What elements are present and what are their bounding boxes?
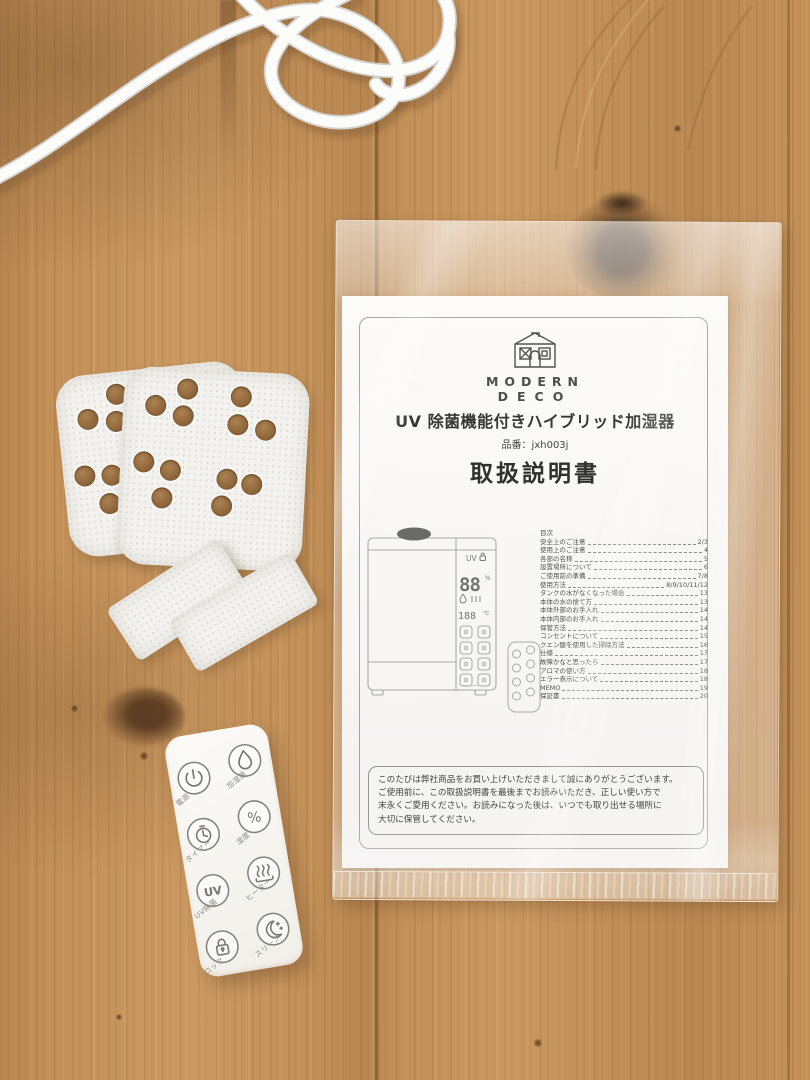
- remote-timer-button: タイマー: [183, 814, 223, 854]
- svg-text:%: %: [485, 575, 491, 582]
- remote-power-button: 電源: [174, 758, 214, 798]
- humidifier-illustration: UV 88 % 188 ℃: [362, 522, 544, 718]
- toc-row: コンセントについて15: [540, 632, 708, 641]
- toc-row: 仕様17: [540, 649, 708, 658]
- steam-icon: [472, 596, 480, 602]
- mist-nozzle: [397, 528, 431, 541]
- lock-icon: [480, 553, 486, 560]
- notice-line: ご使用前に、この取扱説明書を最後までお読みいただき、正しい使い方で: [378, 787, 694, 800]
- toc-row: 安全上のご注意2/3: [540, 538, 708, 547]
- wood-speck: [140, 752, 148, 760]
- svg-text:℃: ℃: [483, 610, 489, 617]
- notice-line: このたびは弊社商品をお買い上げいただきまして誠にありがとうございます。: [378, 774, 694, 787]
- toc-row: 保証書20: [540, 692, 708, 701]
- toc-row: エラー表示について18: [540, 675, 708, 684]
- toc-row: 設置場所について6: [540, 563, 708, 572]
- toc-row: 本体内部のお手入れ14: [540, 615, 708, 624]
- toc-row: クエン酸を使用した掃除方法16: [540, 641, 708, 650]
- toc-row: 保管方法14: [540, 624, 708, 633]
- notice-line: 末永くご愛用ください。お読みになった後は、いつでも取り出せる場所に: [378, 800, 694, 813]
- wood-speck: [674, 125, 681, 132]
- brand-name: MODERN DECO: [342, 374, 728, 404]
- notice-box: このたびは弊社商品をお買い上げいただきまして誠にありがとうございます。 ご使用前…: [368, 766, 704, 835]
- toc-row: ご使用前の準備7/8: [540, 572, 708, 581]
- manual-cover: MODERN DECO UV 除菌機能付きハイブリッド加湿器 品番：jxh003…: [342, 296, 728, 868]
- svg-text:188: 188: [458, 611, 476, 622]
- wood-speck: [534, 1039, 542, 1047]
- table-of-contents: 目次 安全上のご注意2/3 使用上のご注意4 各部の名称5 設置場所について6 …: [540, 529, 708, 701]
- remote-uv-button: UV UV除菌: [193, 870, 233, 910]
- toc-header: 目次: [540, 529, 708, 538]
- svg-text:88: 88: [459, 574, 480, 596]
- remote-heater-button: ヒーター: [243, 853, 283, 893]
- remote-lock-button: ロック: [202, 927, 242, 967]
- toc-row: 使用方法8/9/10/11/12: [540, 581, 708, 590]
- wood-knot: [104, 688, 184, 746]
- toc-row: 本体外部のお手入れ14: [540, 606, 708, 615]
- toc-row: タンクの水がなくなった場合13: [540, 589, 708, 598]
- modern-deco-logo-icon: [511, 330, 559, 370]
- photo-scene: MODERN DECO UV 除菌機能付きハイブリッド加湿器 品番：jxh003…: [0, 0, 810, 1080]
- remote-mist-button: 加湿量: [225, 740, 265, 780]
- display-panel: UV 88 % 188 ℃: [458, 553, 491, 686]
- grain-streak: [220, 0, 236, 160]
- product-title: UV 除菌機能付きハイブリッド加湿器: [342, 408, 728, 432]
- brand-line1: MODERN: [342, 374, 728, 389]
- wood-speck: [116, 1014, 122, 1020]
- toc-row: アロマの使い方18: [540, 667, 708, 676]
- mini-remote-illustration: [508, 642, 540, 712]
- remote-humidity-button: % 湿度: [234, 797, 274, 837]
- model-number: 品番：jxh003j: [342, 436, 728, 451]
- toc-row: 故障かなと思ったら17: [540, 658, 708, 667]
- brand-line2: DECO: [342, 389, 728, 404]
- svg-text:UV: UV: [466, 554, 477, 563]
- toc-row: 使用上のご注意4: [540, 546, 708, 555]
- toc-row: MEMO19: [540, 684, 708, 693]
- plank-seam: [787, 0, 790, 1080]
- remote-sleep-button: スリープ: [253, 909, 293, 949]
- notice-line: 大切に保管してください。: [378, 814, 694, 827]
- document-title: 取扱説明書: [342, 454, 728, 488]
- wood-speck: [71, 705, 78, 712]
